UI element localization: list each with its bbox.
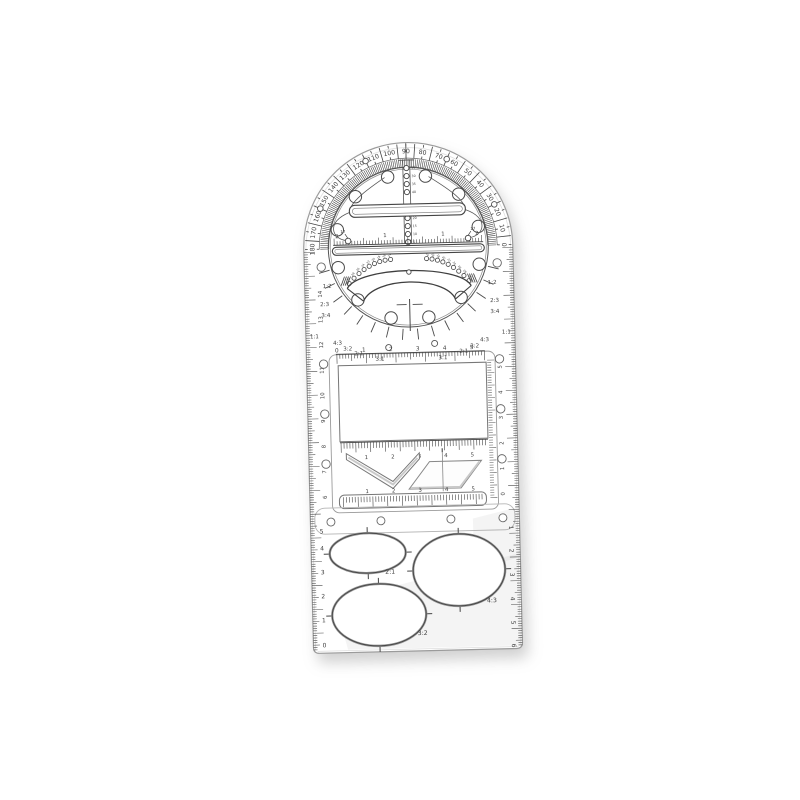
svg-text:0: 0: [322, 642, 326, 649]
screw-hole: [447, 515, 455, 523]
ratio-label: 3:2: [343, 346, 352, 352]
svg-text:7: 7: [322, 470, 328, 474]
svg-text:1: 1: [507, 526, 514, 530]
disc-hole: [381, 171, 394, 184]
svg-text:5: 5: [498, 365, 504, 369]
svg-text:5: 5: [509, 621, 516, 625]
disc-hole: [419, 170, 432, 183]
svg-text:2: 2: [391, 454, 395, 460]
ratio-label: 1:1: [502, 330, 512, 336]
screw-hole: [327, 518, 335, 526]
svg-text:2: 2: [508, 549, 515, 553]
svg-text:35: 35: [412, 182, 416, 186]
screw-hole: [377, 517, 385, 525]
svg-text:1: 1: [383, 233, 387, 239]
svg-text:3: 3: [416, 346, 420, 352]
top-slot: [349, 203, 465, 218]
svg-text:2: 2: [389, 347, 393, 353]
svg-text:1: 1: [322, 617, 326, 624]
disc-hole: [423, 311, 436, 324]
disc-hole: [385, 312, 398, 325]
ratio-label: 4:3: [480, 337, 490, 343]
svg-text:12: 12: [319, 341, 325, 348]
svg-text:0: 0: [335, 348, 339, 354]
svg-text:40: 40: [412, 190, 416, 194]
svg-text:4: 4: [443, 346, 447, 352]
svg-text:6: 6: [510, 644, 517, 648]
svg-text:1: 1: [500, 467, 506, 471]
svg-text:13: 13: [318, 316, 324, 323]
ratio-label: 1:2: [323, 284, 332, 290]
ratio-label: 1:1: [310, 334, 320, 340]
disc-hole: [332, 261, 345, 274]
svg-text:2: 2: [499, 441, 505, 445]
svg-text:14: 14: [318, 290, 324, 298]
ratio-label: 2:3: [320, 302, 330, 308]
ratio-label: 4:3: [333, 341, 343, 347]
drawing-template-ruler: 0102030405060708090100110120130140150160…: [0, 0, 800, 800]
ellipse-ratio-label: 3:2: [418, 630, 428, 637]
ratio-label: 3:4: [490, 309, 500, 315]
svg-text:2: 2: [475, 231, 479, 237]
ratio-label: 1:2: [488, 280, 497, 286]
svg-text:1: 1: [441, 232, 445, 238]
svg-text:15: 15: [413, 224, 417, 228]
svg-text:25: 25: [411, 166, 415, 170]
svg-text:4: 4: [320, 545, 324, 552]
degree-label: 180: [309, 243, 316, 255]
svg-text:5: 5: [471, 452, 475, 458]
svg-text:17: 17: [470, 226, 476, 231]
product-photo: 0102030405060708090100110120130140150160…: [0, 0, 800, 800]
svg-text:17: 17: [340, 229, 346, 234]
svg-text:3: 3: [499, 416, 505, 420]
disc-hole: [473, 258, 486, 271]
svg-text:1: 1: [362, 348, 366, 354]
ellipse-ratio-label: 2:1: [385, 569, 395, 576]
degree-label: 0: [500, 243, 507, 247]
svg-text:4: 4: [509, 597, 516, 601]
svg-text:3: 3: [321, 569, 325, 576]
svg-text:3: 3: [508, 573, 515, 577]
svg-text:5: 5: [470, 345, 474, 351]
ratio-label: 2:3: [490, 298, 500, 304]
svg-text:1: 1: [365, 455, 369, 461]
svg-text:2: 2: [335, 234, 339, 240]
svg-text:10: 10: [413, 232, 417, 236]
svg-text:20: 20: [413, 216, 417, 220]
svg-text:10: 10: [320, 392, 326, 400]
screw-hole: [499, 514, 507, 522]
svg-text:2: 2: [321, 593, 325, 600]
degree-label: 80: [418, 149, 427, 157]
svg-text:5: 5: [320, 528, 324, 535]
svg-text:30: 30: [411, 174, 415, 178]
ellipse-ratio-label: 4:3: [487, 597, 497, 604]
ratio-label: 3:1: [375, 357, 385, 363]
rectangle-cutout: [338, 362, 488, 442]
